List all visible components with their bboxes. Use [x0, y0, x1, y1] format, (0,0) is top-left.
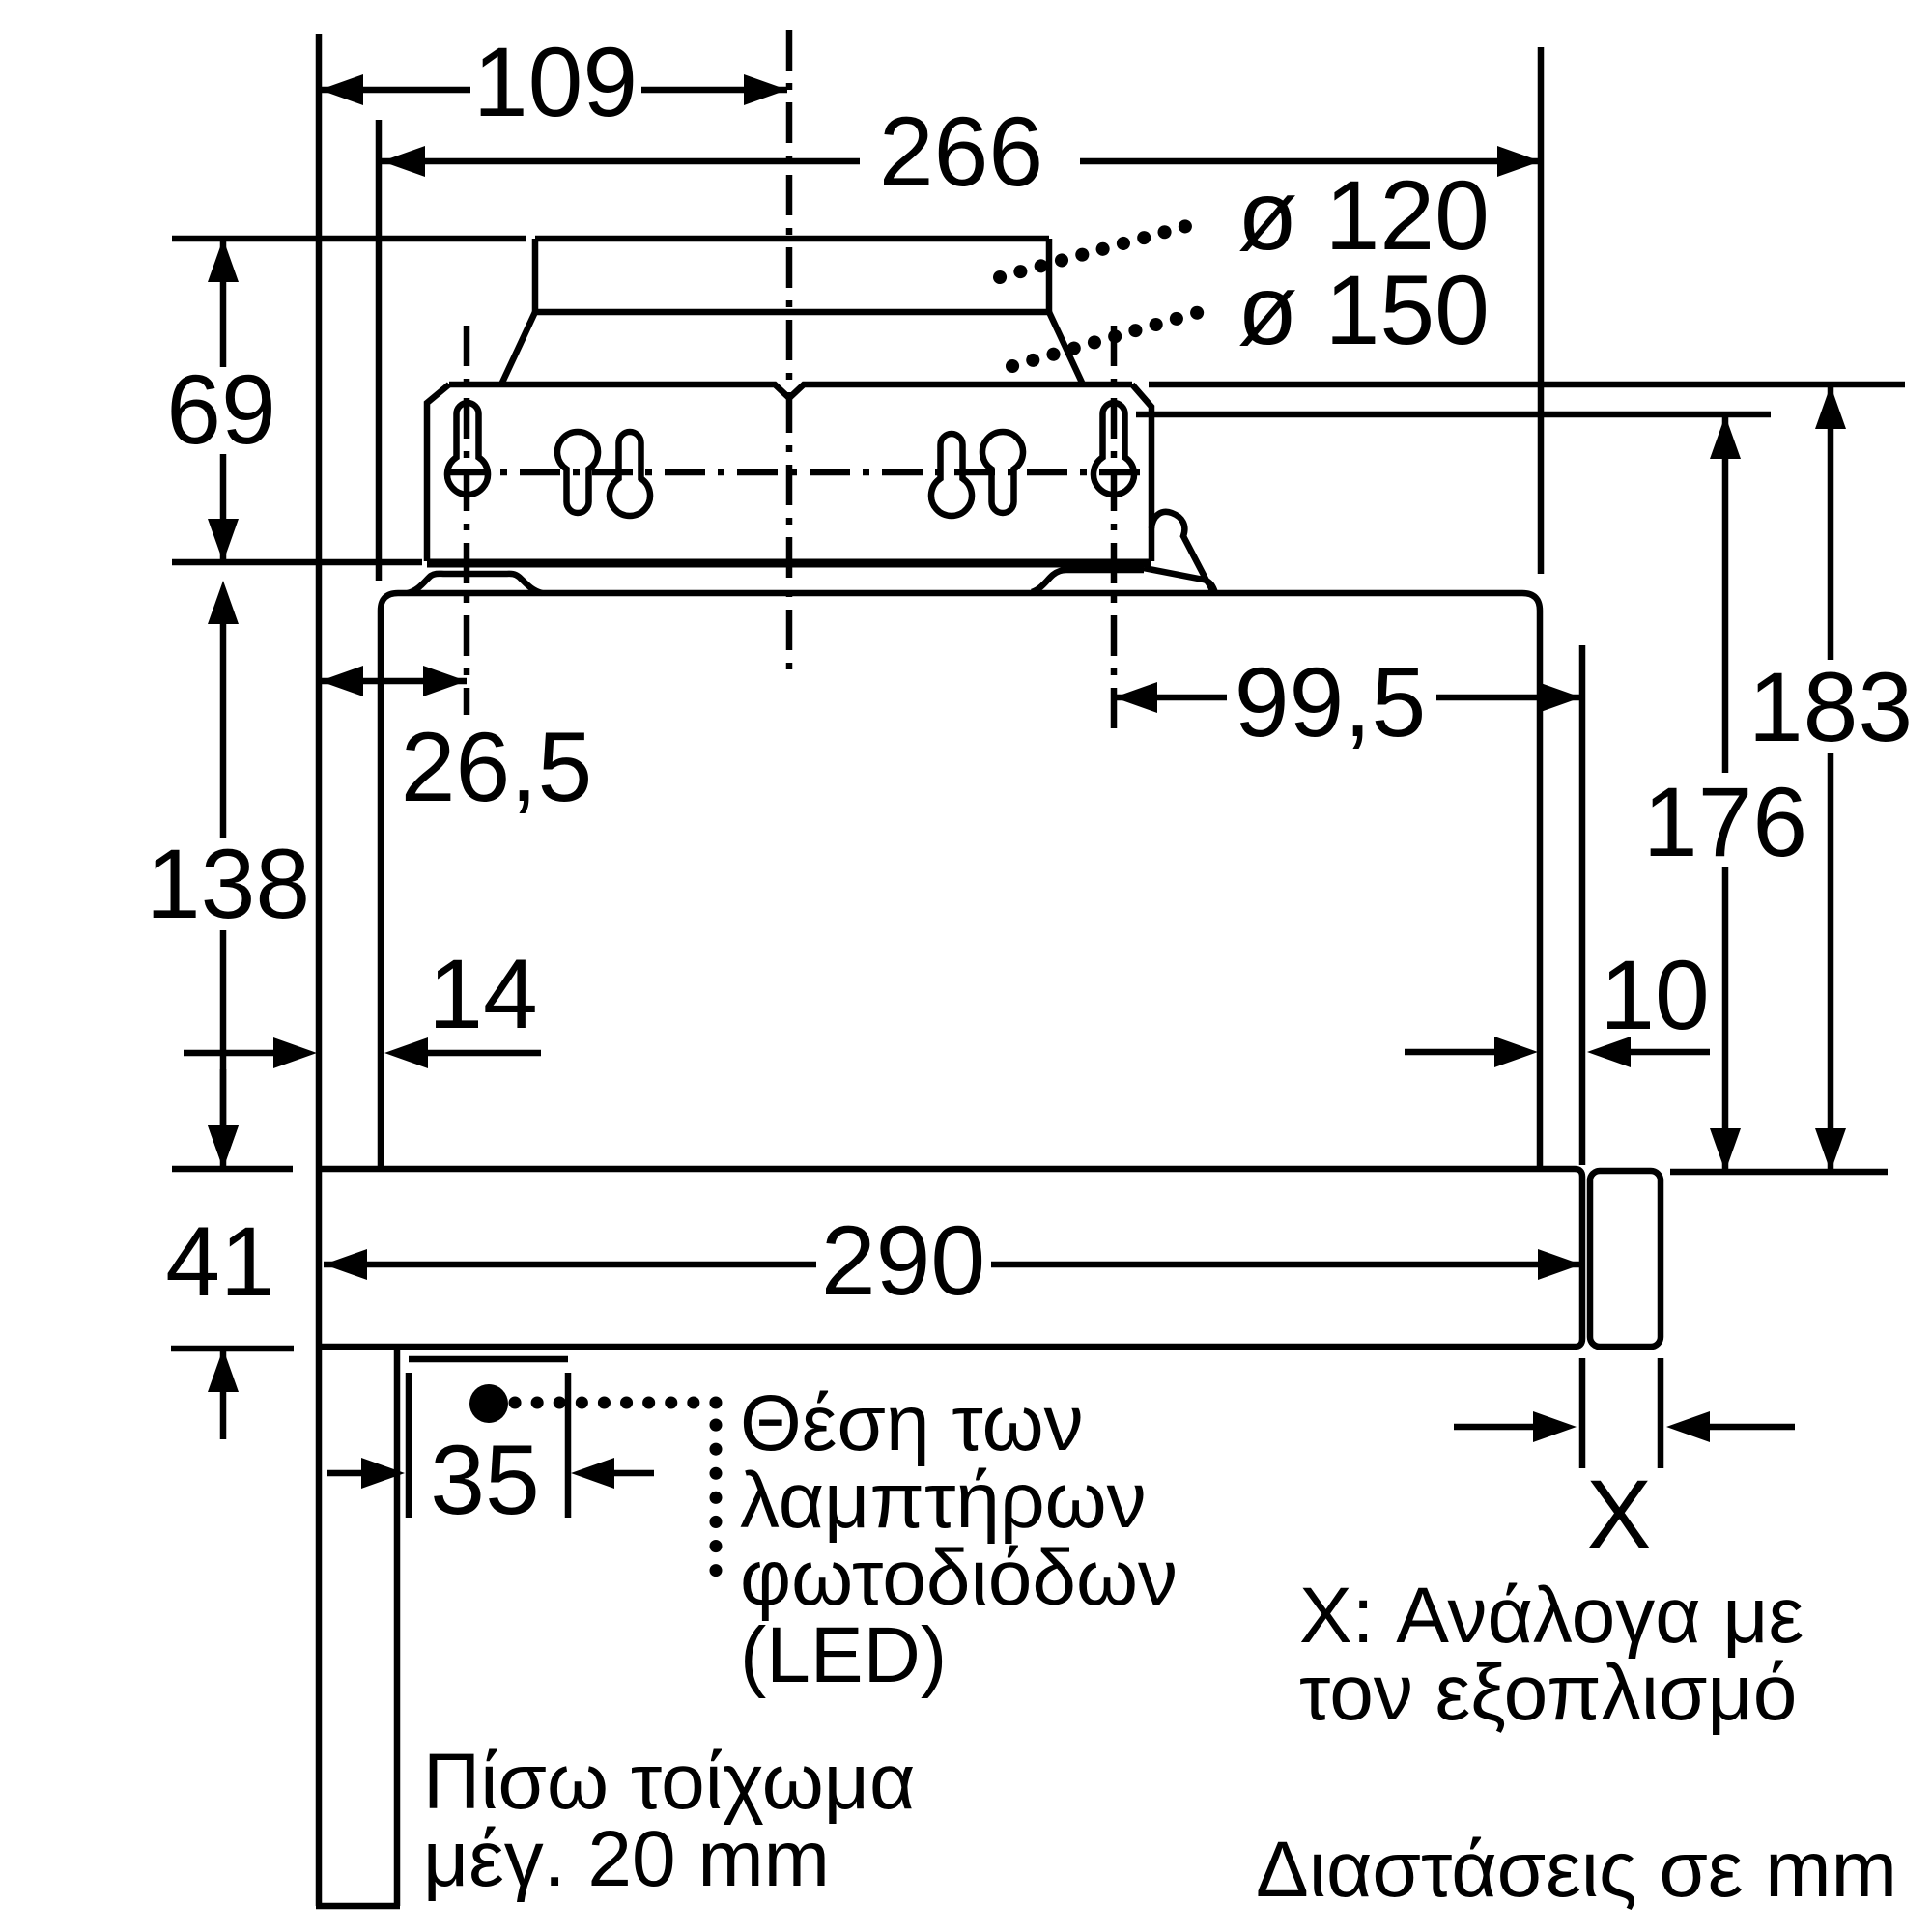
- svg-text:ø 150: ø 150: [1237, 255, 1490, 365]
- svg-text:41: 41: [165, 1207, 274, 1317]
- svg-text:26,5: 26,5: [401, 712, 593, 822]
- svg-text:Πίσω τοίχωμα: Πίσω τοίχωμα: [423, 1738, 915, 1826]
- svg-text:35: 35: [430, 1425, 539, 1535]
- svg-text:10: 10: [1600, 940, 1709, 1050]
- svg-text:φωτοδιόδων: φωτοδιόδων: [740, 1534, 1178, 1622]
- svg-text:λαμπτήρων: λαμπτήρων: [740, 1457, 1147, 1545]
- svg-text:Θέση των: Θέση των: [740, 1379, 1084, 1467]
- svg-text:176: 176: [1643, 767, 1807, 877]
- svg-text:(LED): (LED): [740, 1611, 947, 1699]
- svg-text:X: Ανάλογα με: X: Ανάλογα με: [1299, 1572, 1804, 1660]
- svg-text:290: 290: [821, 1206, 985, 1316]
- svg-text:69: 69: [166, 355, 275, 465]
- svg-text:μέγ. 20 mm: μέγ. 20 mm: [423, 1815, 830, 1903]
- svg-text:183: 183: [1748, 652, 1913, 762]
- svg-text:τον εξοπλισμό: τον εξοπλισμό: [1299, 1649, 1797, 1737]
- svg-text:ø 120: ø 120: [1237, 160, 1490, 270]
- svg-text:138: 138: [146, 829, 310, 939]
- svg-text:266: 266: [879, 97, 1043, 207]
- svg-text:99,5: 99,5: [1235, 647, 1427, 757]
- svg-text:Διαστάσεις σε mm: Διαστάσεις σε mm: [1256, 1826, 1897, 1914]
- svg-text:109: 109: [473, 27, 638, 137]
- svg-text:X: X: [1586, 1460, 1652, 1570]
- svg-text:14: 14: [428, 939, 537, 1049]
